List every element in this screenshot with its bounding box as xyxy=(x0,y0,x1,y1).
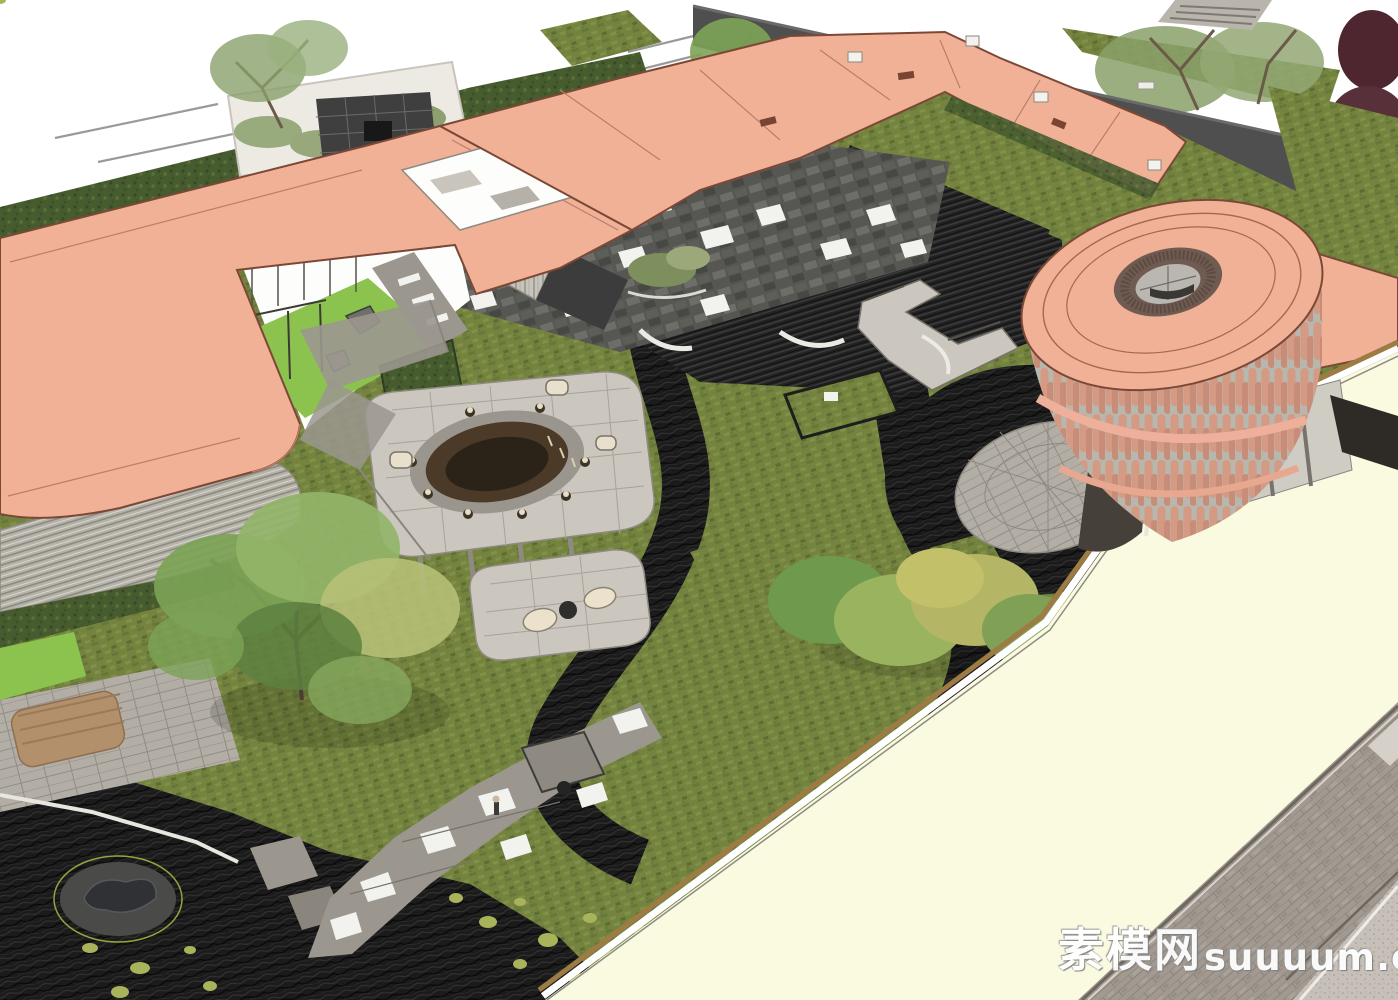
scene-svg xyxy=(0,0,1398,1000)
render-canvas: 素模网suuuum.com xyxy=(0,0,1398,1000)
lounge-terrace xyxy=(470,550,650,660)
neighbor-striped-roof xyxy=(1158,0,1272,30)
